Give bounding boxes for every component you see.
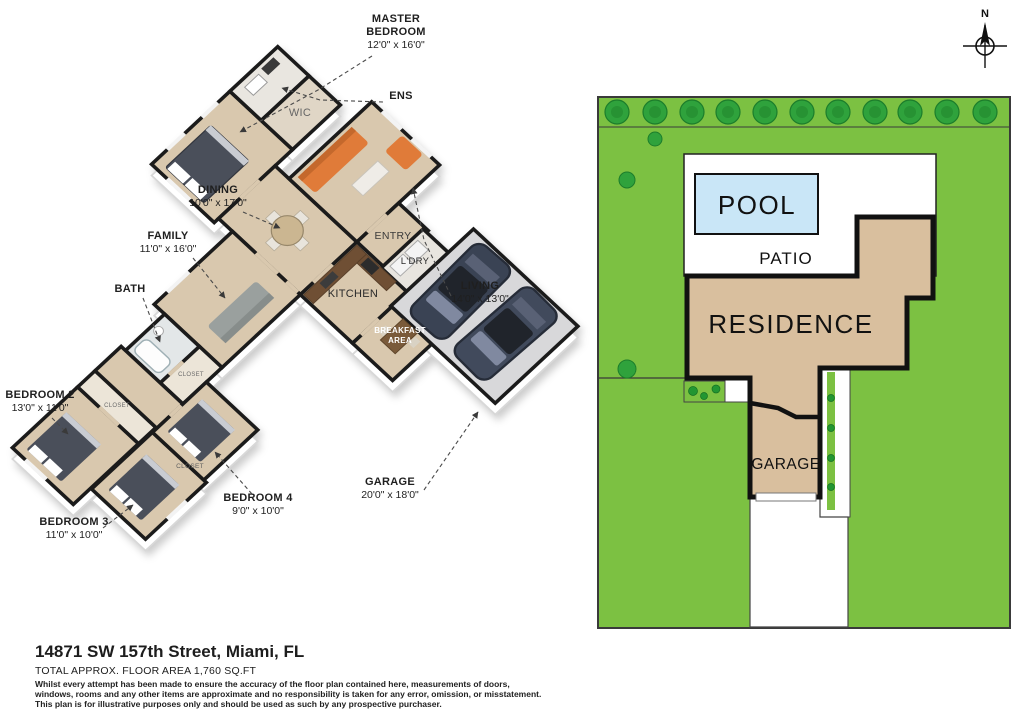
floorplan-sheet: MASTERBEDROOM12'0" x 16'0"ENSDINING10'0"… [0, 0, 1024, 724]
pool-label: POOL [718, 190, 796, 220]
room-text-closet-3: CLOSET [176, 463, 204, 470]
room-text-closet-1: CLOSET [178, 372, 204, 378]
tree-inner [686, 106, 698, 118]
floor-plan-3d [0, 31, 601, 662]
tree [618, 360, 636, 378]
leader-line-garage [424, 412, 478, 490]
room-text-breakfast-2: AREA [388, 336, 412, 345]
tree-inner [941, 106, 953, 118]
svg-text:12'0" x 16'0": 12'0" x 16'0" [367, 39, 425, 51]
svg-text:11'0" x 16'0": 11'0" x 16'0" [140, 243, 197, 255]
walkway-square [725, 379, 748, 402]
room-text-entry: ENTRY [375, 230, 412, 242]
bush [712, 385, 720, 393]
tree-inner [759, 106, 771, 118]
tree-row [605, 100, 997, 124]
room-text-wic: WIC [289, 107, 311, 119]
svg-text:13'0" x 11'0": 13'0" x 11'0" [12, 402, 69, 414]
room-text-closet-2: CLOSET [104, 403, 130, 409]
svg-text:LIVING: LIVING [461, 280, 499, 292]
tree [619, 172, 635, 188]
site-plan: POOL PATIO RESIDENCE GARAGE [598, 97, 1010, 628]
svg-text:ENS: ENS [389, 90, 413, 102]
tree-inner [904, 106, 916, 118]
bush [701, 393, 708, 400]
svg-text:FAMILY: FAMILY [147, 230, 188, 242]
svg-text:10'0" x 17'0": 10'0" x 17'0" [189, 197, 247, 209]
tree-inner [611, 106, 623, 118]
svg-text:BEDROOM 3: BEDROOM 3 [39, 516, 108, 528]
room-text-ldry: L'DRY [401, 256, 430, 267]
tree-inner [796, 106, 808, 118]
svg-text:MASTER: MASTER [372, 13, 420, 25]
bush [828, 455, 835, 462]
svg-text:BEDROOM: BEDROOM [366, 26, 426, 38]
tree-inner [869, 106, 881, 118]
svg-text:14'0" x 13'0": 14'0" x 13'0" [451, 293, 509, 305]
tree-inner [649, 106, 661, 118]
svg-text:11'0" x 10'0": 11'0" x 10'0" [46, 529, 103, 541]
svg-text:BEDROOM 2: BEDROOM 2 [5, 389, 74, 401]
svg-text:BATH: BATH [115, 283, 146, 295]
room-text-breakfast-1: BREAKFAST [374, 326, 426, 335]
room-label-garage: GARAGE20'0" x 18'0" [361, 412, 478, 501]
garage-site-label: GARAGE [751, 456, 820, 473]
bush [689, 387, 698, 396]
bush [828, 395, 835, 402]
tree-inner [979, 106, 991, 118]
tree [648, 132, 662, 146]
footer: 14871 SW 157th Street, Miami, FL TOTAL A… [35, 642, 555, 710]
svg-text:GARAGE: GARAGE [365, 476, 415, 488]
floor-area-note: TOTAL APPROX. FLOOR AREA 1,760 SQ.FT [35, 665, 555, 677]
address: 14871 SW 157th Street, Miami, FL [35, 642, 555, 662]
svg-text:BEDROOM 4: BEDROOM 4 [223, 492, 293, 504]
garage-door [756, 493, 816, 501]
svg-text:9'0" x 10'0": 9'0" x 10'0" [232, 505, 284, 517]
bush [828, 425, 835, 432]
disclaimer-line: This plan is for illustrative purposes o… [35, 700, 555, 710]
driveway [750, 497, 848, 627]
compass-north-label: N [981, 8, 989, 20]
residence-label: RESIDENCE [708, 309, 873, 339]
bush [828, 484, 835, 491]
svg-text:20'0" x 18'0": 20'0" x 18'0" [361, 489, 419, 501]
tree-inner [722, 106, 734, 118]
svg-text:DINING: DINING [198, 184, 238, 196]
compass: N [963, 8, 1007, 68]
patio-label: PATIO [759, 249, 813, 268]
room-text-kitchen: KITCHEN [328, 288, 378, 300]
tree-inner [832, 106, 844, 118]
